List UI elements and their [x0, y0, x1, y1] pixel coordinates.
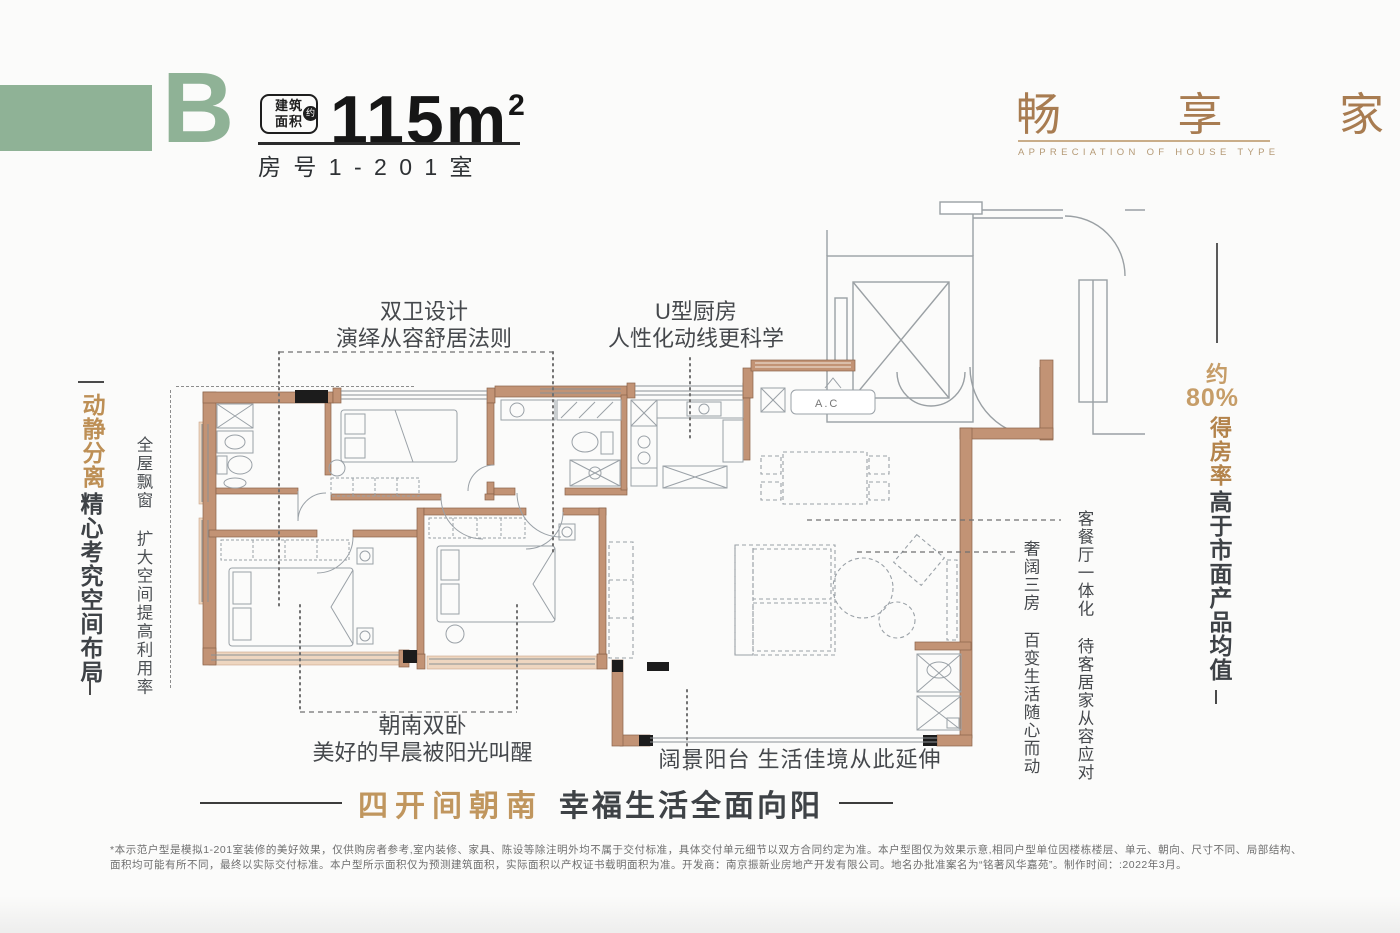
living-furniture [609, 452, 957, 658]
brand-title: 畅 享 家 [1016, 78, 1400, 143]
left-headline-gold: 动静分离 [75, 393, 109, 489]
type-block-letter: B [162, 58, 234, 158]
sofa [735, 545, 835, 655]
callout-balcony: 阔景阳台 生活佳境从此延伸 [630, 746, 970, 773]
left-note-bay-window: 全屋飘窗 扩大空间提高利用率 [131, 436, 155, 697]
right-percent: 80% [1186, 384, 1239, 413]
callout-bath-line1: 双卫设计 [288, 298, 560, 325]
bottom-banner: 四开间朝南 幸福生活全面向阳 [200, 783, 968, 823]
right-panel-rule-bottom [1215, 690, 1217, 704]
callout-bedrooms: 朝南双卧 美好的早晨被阳光叫醒 [280, 712, 565, 766]
callout-bedrooms-line1: 朝南双卧 [280, 712, 565, 739]
callout-three-rooms: 奢阔三房 百变生活随心而动 [1018, 540, 1042, 776]
callout-kitchen-line2: 人性化动线更科学 [556, 325, 836, 352]
right-rate: 得房率 [1203, 416, 1235, 488]
entry-door-arc [970, 367, 1040, 437]
dining-table [783, 452, 867, 504]
callout-bath: 双卫设计 演绎从容舒居法则 [288, 298, 560, 352]
unit-walls [203, 360, 1053, 746]
room-number: 房 号 1 - 2 0 1 室 [258, 148, 476, 182]
brand-subtitle: APPRECIATION OF HOUSE TYPE [1018, 147, 1279, 158]
bottom-fade [0, 896, 1400, 933]
callout-kitchen-line1: U型厨房 [556, 298, 836, 325]
right-panel-rule-top [1216, 243, 1218, 343]
left-note-dashed-line [170, 390, 171, 688]
banner-rule-left [200, 802, 342, 804]
area-number: 115m [330, 82, 508, 158]
banner-rule-right [839, 802, 893, 804]
approx-circle-icon: 约 [303, 106, 318, 121]
floorplan-drawing: A.C [195, 190, 1145, 775]
callout-living-dining: 客餐厅一体化 待客居家从容应对 [1072, 510, 1096, 782]
banner-dark-text: 幸福生活全面向阳 [559, 781, 823, 825]
callout-bath-line2: 演绎从容舒居法则 [288, 325, 560, 352]
floorplan-poster: { "header": { "block_letter": "B", "area… [0, 0, 1400, 933]
type-color-bar [0, 85, 152, 151]
right-headline-dark: 高于市面产品均值 [1202, 490, 1236, 682]
disclaimer-text: *本示范户型是模拟1-201室装修的美好效果，仅供购房者参考,室内装修、家具、陈… [110, 843, 1302, 872]
left-panel-rule-top [78, 381, 104, 383]
left-headline-dark: 精心考究空间布局 [73, 492, 107, 684]
armchair [894, 535, 945, 586]
header-underline [258, 142, 520, 145]
door-arcs [298, 465, 563, 573]
banner-gold-text: 四开间朝南 [358, 781, 543, 825]
callout-bedrooms-line2: 美好的早晨被阳光叫醒 [280, 739, 565, 766]
ac-label: A.C [815, 398, 839, 410]
callout-kitchen: U型厨房 人性化动线更科学 [556, 298, 836, 352]
left-panel-rule-bottom [89, 678, 91, 695]
brand-underline [1018, 140, 1270, 142]
area-sup: 2 [508, 89, 527, 122]
rug [833, 558, 893, 618]
